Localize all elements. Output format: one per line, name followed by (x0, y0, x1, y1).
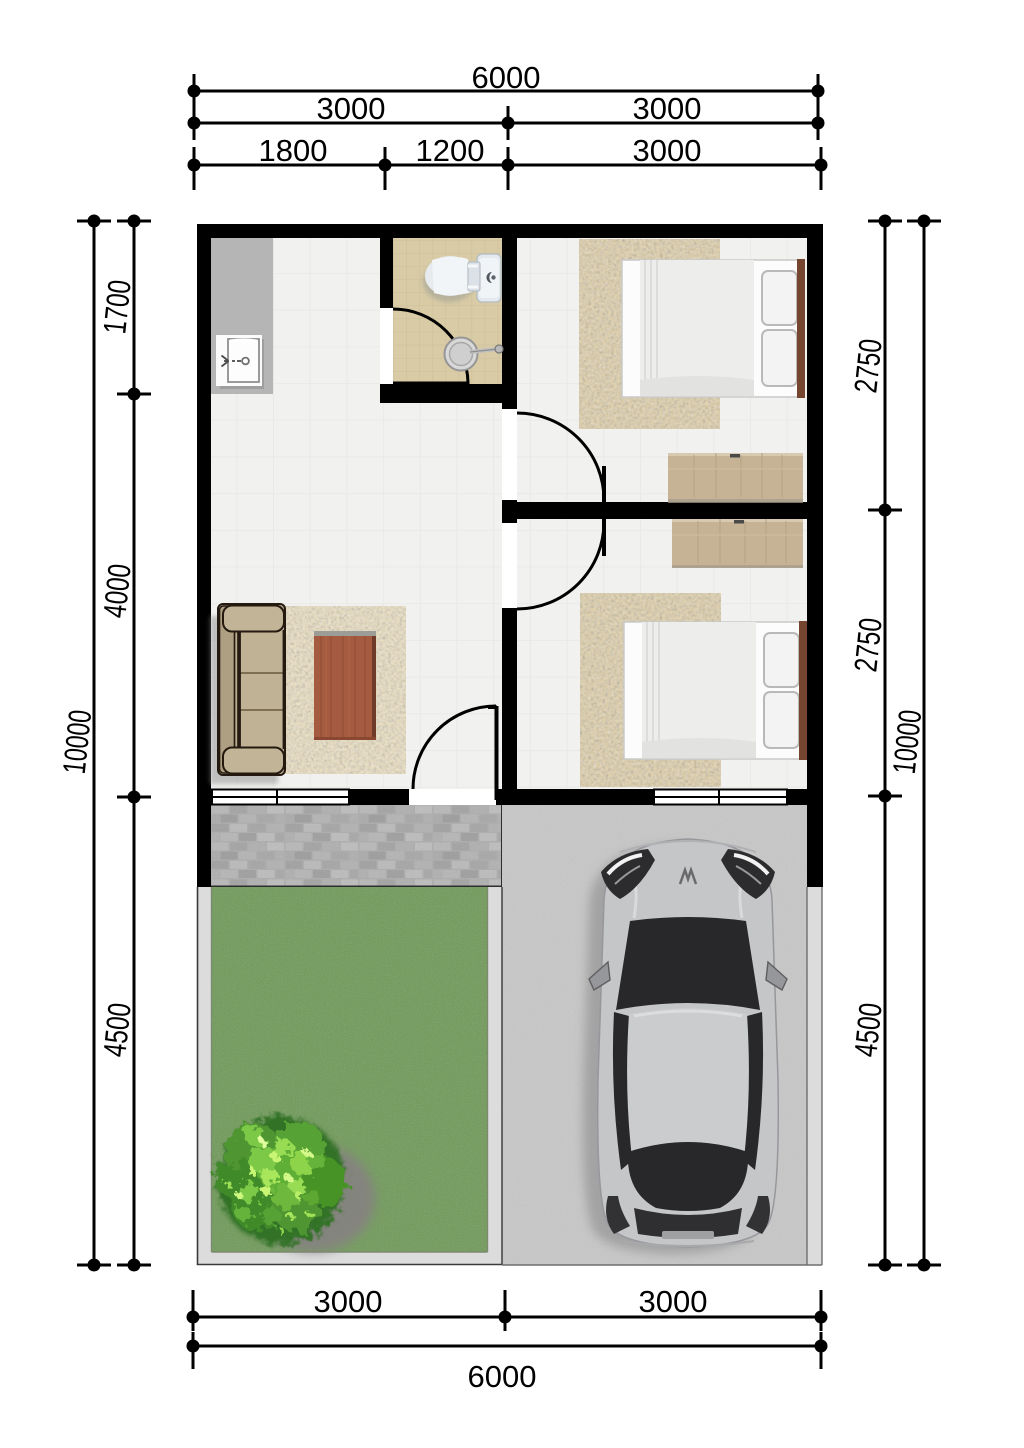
svg-text:3000: 3000 (639, 1284, 708, 1319)
svg-text:3000: 3000 (317, 91, 386, 126)
svg-text:6000: 6000 (472, 60, 541, 95)
svg-text:3000: 3000 (633, 91, 702, 126)
svg-text:4000: 4000 (96, 562, 137, 619)
svg-text:1800: 1800 (259, 133, 328, 168)
svg-text:4500: 4500 (96, 1001, 137, 1058)
svg-text:2750: 2750 (847, 337, 888, 394)
svg-text:10000: 10000 (56, 708, 98, 775)
svg-text:1200: 1200 (416, 133, 485, 168)
svg-text:1700: 1700 (96, 278, 137, 335)
svg-text:2750: 2750 (847, 616, 888, 673)
svg-text:4500: 4500 (847, 1001, 888, 1058)
svg-text:6000: 6000 (468, 1359, 537, 1394)
svg-text:3000: 3000 (314, 1284, 383, 1319)
svg-text:3000: 3000 (633, 133, 702, 168)
svg-text:10000: 10000 (886, 708, 928, 775)
